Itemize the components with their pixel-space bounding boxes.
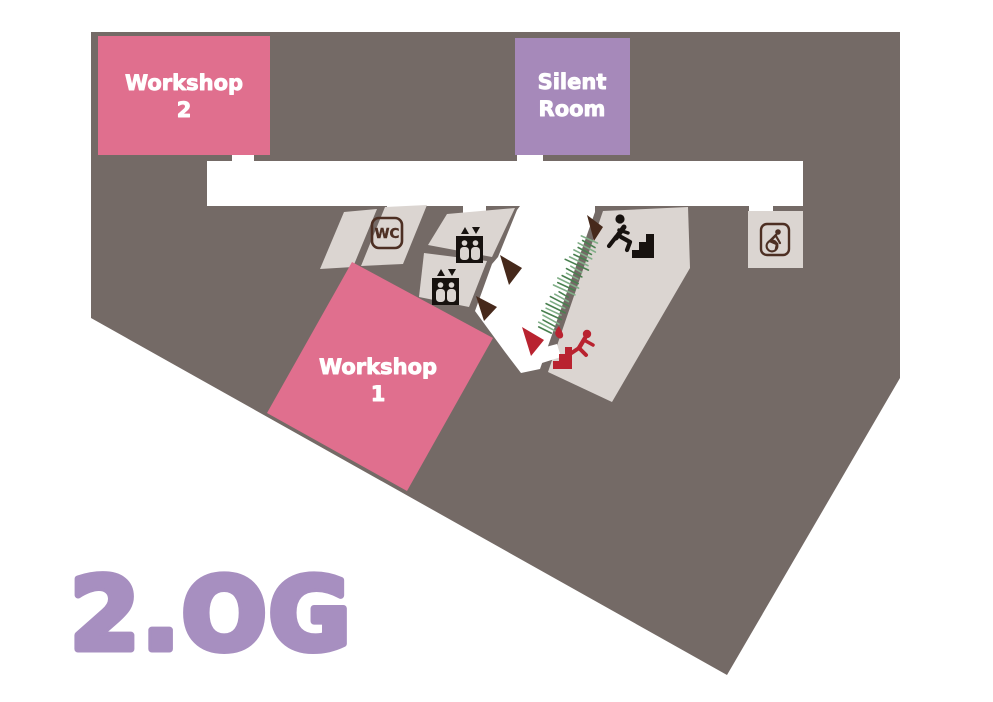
door-workshop2 bbox=[232, 154, 254, 162]
silent-room-label-line2: Room bbox=[539, 97, 606, 121]
door-silent-room bbox=[517, 154, 543, 162]
floor-plan-map: WC bbox=[0, 0, 993, 702]
workshop2-label-line1: Workshop bbox=[125, 71, 243, 95]
floor-level-label: 2.OG bbox=[70, 556, 353, 673]
workshop1-label-line1: Workshop bbox=[319, 355, 437, 379]
accessible-wc-room bbox=[748, 211, 803, 268]
main-corridor bbox=[207, 161, 803, 206]
floor-plan-page: WC bbox=[0, 0, 993, 702]
wc-icon-label: WC bbox=[375, 226, 400, 242]
silent-room-label-line1: Silent bbox=[538, 70, 607, 94]
workshop2-label-line2: 2 bbox=[177, 98, 192, 122]
room-workshop2 bbox=[98, 36, 270, 155]
workshop1-label-line2: 1 bbox=[371, 382, 386, 406]
